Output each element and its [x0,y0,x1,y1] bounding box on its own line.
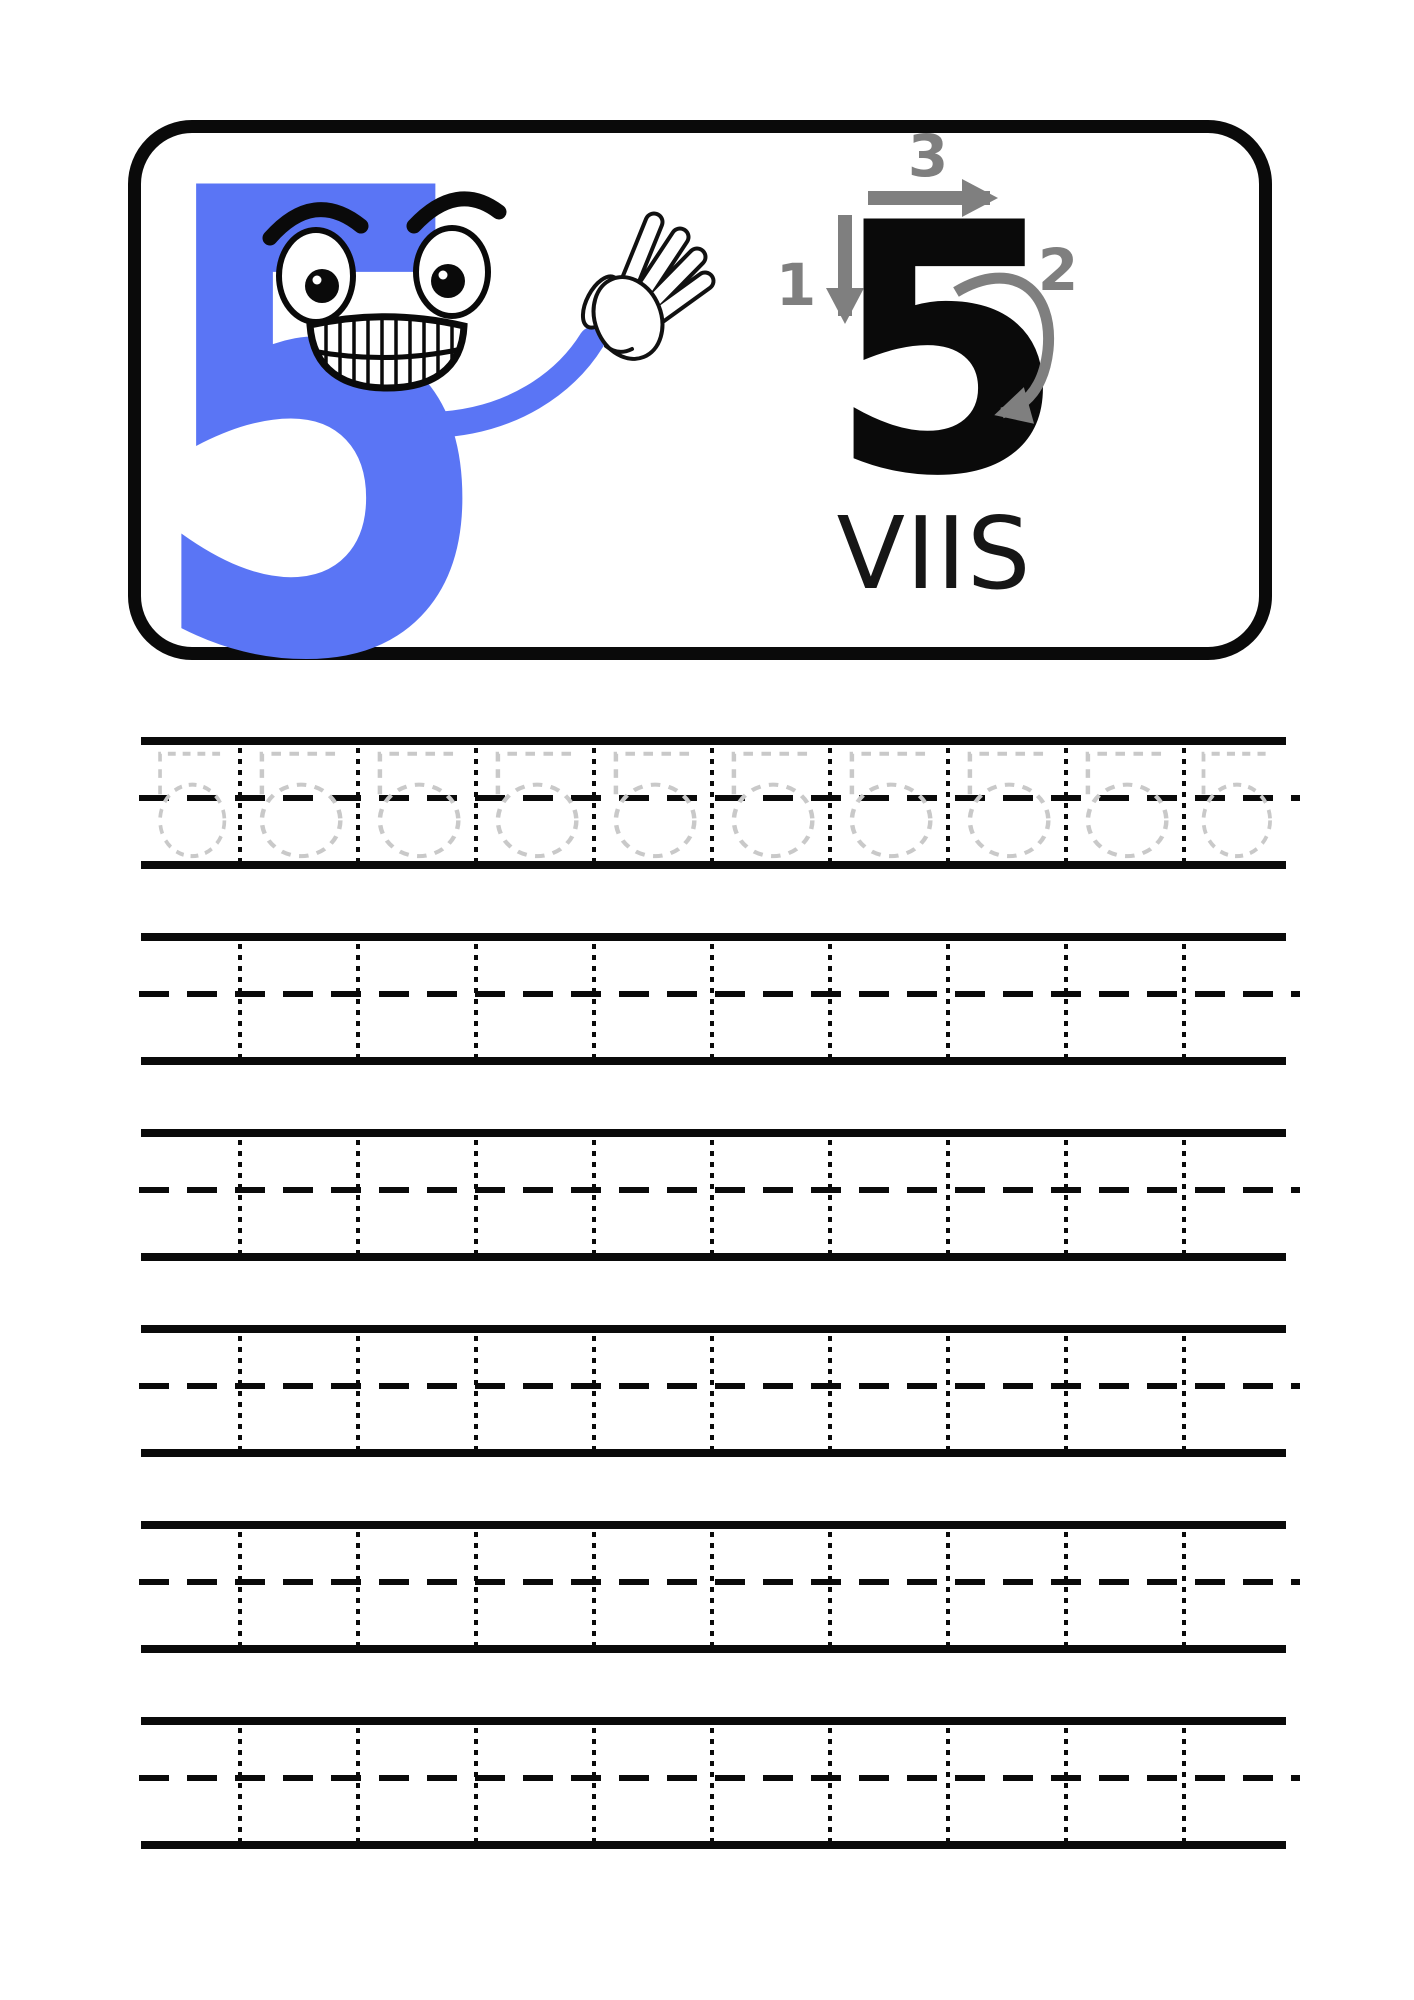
cell-divider [710,1717,714,1849]
cell-divider [1064,933,1068,1065]
cell-divider [1182,1717,1186,1849]
writing-midline [139,1579,1300,1585]
cell-divider [828,1129,832,1261]
cell-divider [592,737,596,869]
cell-divider [474,737,478,869]
worksheet-page: 5 [0,0,1414,2000]
cell-divider [238,1129,242,1261]
trace-digit-cell [836,747,942,859]
cell-divider [238,1717,242,1849]
cell-divider [946,1717,950,1849]
stroke-step-label-3: 3 [908,122,948,190]
guide-digit: 5 [827,151,1067,552]
trace-digit-outline [482,747,588,859]
trace-digit-cell [1190,747,1280,859]
tracing-row [141,933,1286,1065]
cell-divider [1064,1325,1068,1457]
cell-divider [1182,1521,1186,1653]
trace-digit-outline [600,747,706,859]
number-word: VIIS [837,495,1032,612]
stroke-order-guide: 5 1 3 2 [776,122,1078,552]
cell-divider [356,1325,360,1457]
cell-divider [356,1521,360,1653]
cell-divider [592,1521,596,1653]
cell-divider [238,1521,242,1653]
cell-divider [828,1521,832,1653]
cell-divider [710,737,714,869]
cell-divider [1182,1325,1186,1457]
cell-divider [710,1129,714,1261]
trace-digit-outline [718,747,824,859]
cell-divider [474,1717,478,1849]
writing-midline [139,991,1300,997]
trace-digit-outline [364,747,470,859]
cell-divider [1064,737,1068,869]
cell-divider [828,1717,832,1849]
stroke-step-label-2: 2 [1038,236,1078,304]
tracing-row [141,1129,1286,1261]
cell-divider [592,1717,596,1849]
trace-digit-cell [364,747,470,859]
cell-divider [356,1129,360,1261]
trace-digit-outline [1072,747,1178,859]
cell-divider [1182,737,1186,869]
tracing-rows [141,737,1286,1849]
cell-divider [1182,1129,1186,1261]
header-card: 5 [128,120,1272,660]
mascot-number-five: 5 [142,56,705,801]
left-eye-glint [313,276,322,285]
right-eye-glint [439,271,448,280]
right-pupil-icon [431,264,465,298]
cell-divider [946,1129,950,1261]
cell-divider [946,1325,950,1457]
trace-digit-cell [600,747,706,859]
tracing-row [141,1717,1286,1849]
tracing-row [141,737,1286,869]
trace-digit-cell [246,747,352,859]
trace-digit-outline [1190,747,1280,859]
cell-divider [474,1521,478,1653]
cell-divider [592,1129,596,1261]
cell-divider [238,737,242,869]
cell-divider [356,933,360,1065]
writing-midline [139,1383,1300,1389]
cell-divider [592,933,596,1065]
tracing-row [141,1521,1286,1653]
cell-divider [828,933,832,1065]
cell-divider [474,1325,478,1457]
cell-divider [356,737,360,869]
trace-digit-cell [1072,747,1178,859]
cell-divider [238,1325,242,1457]
left-pupil-icon [305,269,339,303]
cell-divider [1064,1717,1068,1849]
header-card-art: 5 [128,120,1272,660]
cell-divider [946,737,950,869]
trace-digit-cell [147,747,234,859]
cell-divider [828,737,832,869]
cell-divider [710,1521,714,1653]
tracing-row [141,1325,1286,1457]
trace-digit-outline [954,747,1060,859]
cell-divider [1182,933,1186,1065]
trace-digit-cell [954,747,1060,859]
cell-divider [946,933,950,1065]
trace-digit-outline [836,747,942,859]
writing-midline [139,1187,1300,1193]
cell-divider [1064,1521,1068,1653]
stroke-step-label-1: 1 [776,251,816,319]
cell-divider [710,1325,714,1457]
trace-digit-outline [147,747,234,859]
trace-digit-outline [246,747,352,859]
cell-divider [238,933,242,1065]
cell-divider [474,933,478,1065]
cell-divider [592,1325,596,1457]
cell-divider [946,1521,950,1653]
trace-digit-cell [482,747,588,859]
cell-divider [828,1325,832,1457]
trace-digit-cell [718,747,824,859]
cell-divider [710,933,714,1065]
cell-divider [1064,1129,1068,1261]
writing-midline [139,1775,1300,1781]
cell-divider [474,1129,478,1261]
cell-divider [356,1717,360,1849]
